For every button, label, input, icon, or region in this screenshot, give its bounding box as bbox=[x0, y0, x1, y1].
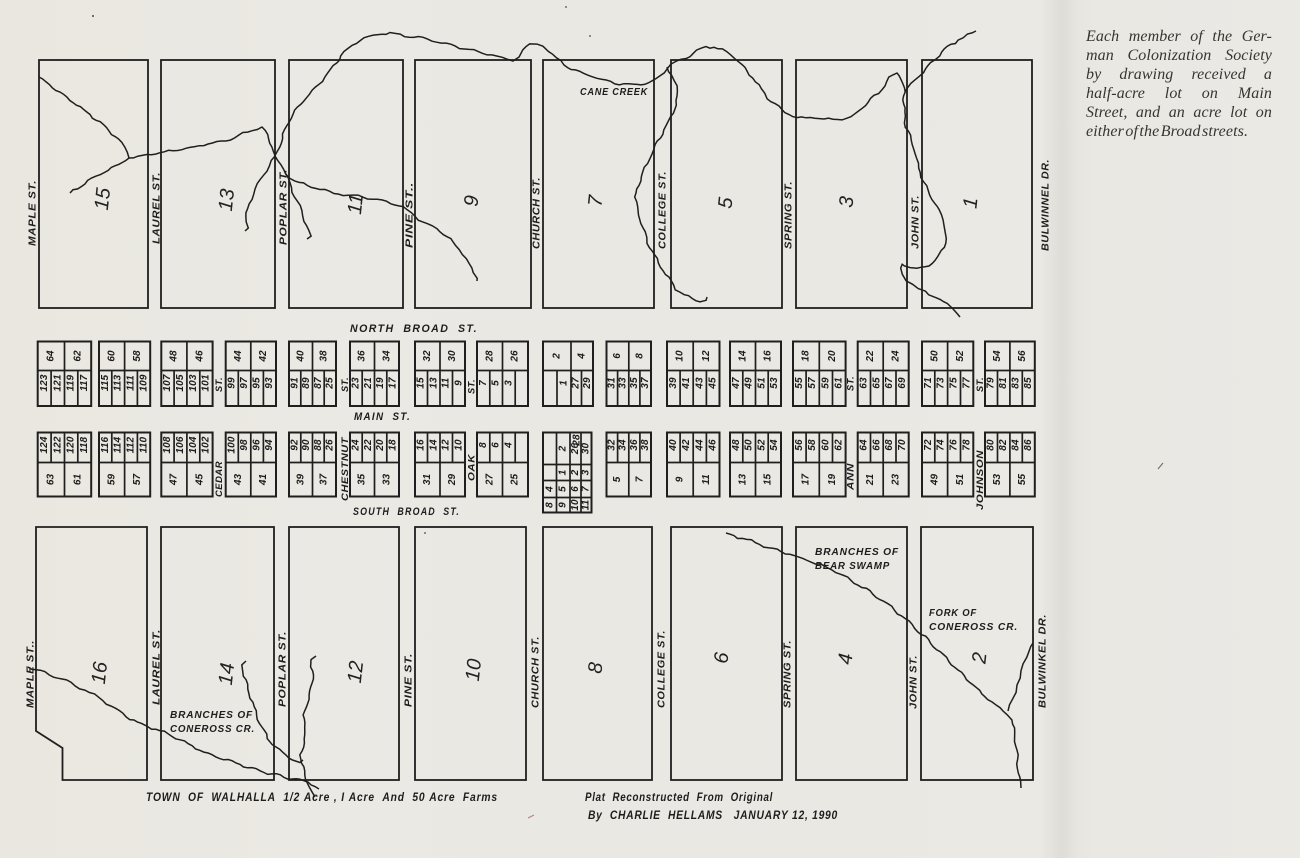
svg-text:108: 108 bbox=[162, 436, 173, 454]
svg-text:11: 11 bbox=[701, 474, 712, 485]
svg-text:65: 65 bbox=[871, 377, 882, 389]
svg-text:47: 47 bbox=[169, 474, 180, 487]
svg-text:12: 12 bbox=[701, 350, 712, 362]
svg-text:48: 48 bbox=[731, 439, 742, 452]
svg-text:84: 84 bbox=[1011, 439, 1022, 451]
svg-text:26: 26 bbox=[325, 439, 336, 452]
svg-text:5: 5 bbox=[558, 486, 569, 492]
svg-text:92: 92 bbox=[289, 439, 300, 451]
svg-text:116: 116 bbox=[100, 436, 111, 453]
svg-text:123: 123 bbox=[39, 374, 50, 392]
svg-text:BULWINKEL DR.: BULWINKEL DR. bbox=[1038, 614, 1049, 708]
svg-text:112: 112 bbox=[126, 436, 137, 453]
svg-text:BULWINNEL DR.: BULWINNEL DR. bbox=[1041, 159, 1052, 251]
svg-text:35: 35 bbox=[357, 474, 368, 486]
svg-text:20: 20 bbox=[375, 439, 386, 452]
svg-text:14: 14 bbox=[737, 350, 748, 362]
svg-text:32: 32 bbox=[607, 439, 618, 451]
svg-text:ST.: ST. bbox=[214, 377, 225, 392]
svg-text:35: 35 bbox=[629, 377, 640, 389]
svg-text:59: 59 bbox=[820, 377, 831, 389]
svg-text:83: 83 bbox=[1011, 377, 1022, 389]
svg-text:100: 100 bbox=[227, 436, 238, 454]
svg-text:17: 17 bbox=[387, 377, 398, 389]
svg-text:39: 39 bbox=[295, 474, 306, 486]
svg-text:3: 3 bbox=[503, 380, 514, 386]
svg-text:16: 16 bbox=[416, 439, 427, 451]
svg-text:99: 99 bbox=[227, 377, 238, 389]
svg-text:6: 6 bbox=[710, 650, 733, 664]
svg-text:SPRING ST.: SPRING ST. bbox=[783, 640, 794, 708]
svg-text:60: 60 bbox=[820, 439, 831, 451]
svg-text:29: 29 bbox=[447, 474, 458, 487]
svg-text:71: 71 bbox=[923, 377, 934, 389]
svg-text:53: 53 bbox=[992, 474, 1003, 486]
svg-text:59: 59 bbox=[106, 474, 117, 486]
svg-text:CHURCH ST.: CHURCH ST. bbox=[531, 636, 542, 708]
svg-text:50: 50 bbox=[744, 439, 755, 451]
svg-text:7: 7 bbox=[478, 380, 489, 386]
svg-text:27: 27 bbox=[484, 474, 495, 487]
svg-text:Plat Reconstructed From Ori: Plat Reconstructed From Original bbox=[585, 792, 773, 804]
svg-text:45: 45 bbox=[194, 474, 205, 487]
svg-text:41: 41 bbox=[258, 474, 269, 487]
svg-text:POPLAR ST.: POPLAR ST. bbox=[279, 169, 290, 245]
svg-text:COLLEGE ST.: COLLEGE ST. bbox=[657, 630, 668, 708]
svg-text:ANN: ANN bbox=[846, 462, 857, 491]
svg-text:7: 7 bbox=[581, 486, 592, 492]
svg-text:4: 4 bbox=[834, 652, 857, 665]
svg-text:81: 81 bbox=[998, 377, 1009, 389]
svg-text:115: 115 bbox=[100, 374, 111, 391]
svg-text:40: 40 bbox=[668, 439, 679, 452]
svg-text:43: 43 bbox=[694, 377, 705, 390]
svg-text:LAUREL ST.: LAUREL ST. bbox=[152, 629, 163, 705]
svg-text:1: 1 bbox=[559, 380, 570, 386]
svg-text:103: 103 bbox=[188, 374, 199, 392]
svg-text:TOWN OF WALHALLA 1/2 Acre ,: TOWN OF WALHALLA 1/2 Acre , I Acre And 5… bbox=[146, 790, 498, 804]
svg-text:32: 32 bbox=[422, 350, 433, 362]
svg-text:21: 21 bbox=[363, 377, 374, 390]
svg-text:28: 28 bbox=[484, 350, 495, 363]
svg-text:97: 97 bbox=[239, 377, 250, 389]
svg-text:PINE ST.: PINE ST. bbox=[404, 653, 415, 707]
svg-text:63: 63 bbox=[46, 474, 57, 486]
svg-text:93: 93 bbox=[264, 377, 275, 389]
svg-text:34: 34 bbox=[618, 439, 629, 451]
svg-text:124: 124 bbox=[39, 436, 50, 454]
svg-text:31: 31 bbox=[422, 474, 433, 486]
svg-text:33: 33 bbox=[618, 377, 629, 389]
svg-text:51: 51 bbox=[955, 474, 966, 486]
svg-text:19: 19 bbox=[375, 377, 386, 389]
svg-text:16: 16 bbox=[88, 660, 112, 685]
svg-text:CHURCH ST.: CHURCH ST. bbox=[532, 177, 543, 249]
svg-text:46: 46 bbox=[707, 439, 718, 452]
svg-text:54: 54 bbox=[992, 350, 1003, 362]
svg-text:52: 52 bbox=[756, 439, 767, 451]
svg-text:75: 75 bbox=[949, 377, 960, 389]
svg-text:16: 16 bbox=[763, 350, 774, 362]
svg-text:42: 42 bbox=[681, 439, 692, 452]
svg-text:102: 102 bbox=[201, 436, 212, 454]
svg-text:53: 53 bbox=[769, 377, 780, 389]
svg-text:CONEROSS CR.: CONEROSS CR. bbox=[929, 622, 1018, 633]
svg-text:22: 22 bbox=[865, 350, 876, 363]
svg-text:12: 12 bbox=[344, 660, 368, 684]
svg-text:87: 87 bbox=[313, 377, 324, 389]
svg-text:NORTH BROAD ST.: NORTH BROAD ST. bbox=[350, 323, 478, 335]
svg-text:55: 55 bbox=[1017, 474, 1028, 486]
svg-text:7: 7 bbox=[634, 476, 645, 482]
svg-text:104: 104 bbox=[188, 436, 199, 454]
svg-text:58: 58 bbox=[807, 439, 818, 451]
svg-text:77: 77 bbox=[961, 377, 972, 389]
svg-text:SPRING ST.: SPRING ST. bbox=[784, 181, 795, 249]
svg-text:8: 8 bbox=[544, 502, 555, 508]
svg-text:91: 91 bbox=[289, 377, 300, 389]
svg-text:10: 10 bbox=[462, 658, 486, 682]
svg-text:90: 90 bbox=[301, 439, 312, 451]
svg-text:37: 37 bbox=[319, 474, 330, 486]
svg-text:6: 6 bbox=[612, 353, 623, 359]
svg-text:3: 3 bbox=[581, 469, 592, 475]
svg-text:57: 57 bbox=[807, 377, 818, 389]
svg-text:JOHN ST.: JOHN ST. bbox=[909, 655, 920, 709]
svg-text:22: 22 bbox=[363, 439, 374, 452]
svg-text:37: 37 bbox=[640, 377, 651, 389]
svg-text:85: 85 bbox=[1023, 377, 1034, 389]
svg-text:40: 40 bbox=[295, 350, 306, 363]
svg-text:COLLEGE ST.: COLLEGE ST. bbox=[658, 171, 669, 249]
svg-text:111: 111 bbox=[126, 375, 137, 391]
svg-text:95: 95 bbox=[252, 377, 263, 389]
svg-text:121: 121 bbox=[52, 374, 63, 392]
svg-text:FORK OF: FORK OF bbox=[929, 608, 977, 619]
svg-text:2: 2 bbox=[570, 469, 581, 476]
svg-text:23: 23 bbox=[351, 377, 362, 390]
svg-text:64: 64 bbox=[46, 350, 57, 362]
svg-text:BEAR SWAMP: BEAR SWAMP bbox=[815, 561, 890, 572]
svg-text:CHESTNUT: CHESTNUT bbox=[340, 436, 351, 501]
svg-text:18: 18 bbox=[387, 439, 398, 451]
svg-text:49: 49 bbox=[744, 377, 755, 390]
svg-text:LAUREL ST.: LAUREL ST. bbox=[152, 172, 163, 244]
svg-text:114: 114 bbox=[113, 436, 124, 453]
svg-text:30: 30 bbox=[447, 350, 458, 362]
svg-text:24: 24 bbox=[891, 350, 902, 363]
svg-text:9: 9 bbox=[558, 502, 569, 508]
svg-text:64: 64 bbox=[859, 439, 870, 451]
svg-text:5: 5 bbox=[612, 476, 623, 482]
svg-text:44: 44 bbox=[694, 439, 705, 452]
svg-text:29: 29 bbox=[582, 377, 593, 390]
svg-text:86: 86 bbox=[1023, 439, 1034, 451]
svg-text:107: 107 bbox=[162, 374, 173, 392]
svg-text:45: 45 bbox=[707, 377, 718, 390]
svg-text:50: 50 bbox=[929, 350, 940, 362]
svg-text:ST.: ST. bbox=[975, 377, 986, 392]
svg-text:44: 44 bbox=[233, 350, 244, 363]
svg-text:ST.: ST. bbox=[340, 377, 351, 392]
svg-text:43: 43 bbox=[233, 474, 244, 487]
svg-text:62: 62 bbox=[834, 439, 845, 451]
svg-text:61: 61 bbox=[834, 377, 845, 389]
svg-text:ST.: ST. bbox=[846, 376, 857, 391]
svg-text:57: 57 bbox=[132, 474, 143, 486]
svg-text:ST.: ST. bbox=[467, 379, 478, 394]
svg-text:17: 17 bbox=[801, 474, 812, 486]
svg-text:49: 49 bbox=[929, 474, 940, 487]
svg-text:15: 15 bbox=[763, 474, 774, 486]
svg-text:10: 10 bbox=[675, 350, 686, 362]
svg-text:12: 12 bbox=[441, 439, 452, 451]
svg-text:110: 110 bbox=[138, 436, 149, 453]
svg-text:69: 69 bbox=[897, 377, 908, 389]
svg-text:62: 62 bbox=[72, 350, 83, 362]
svg-text:14: 14 bbox=[428, 439, 439, 451]
svg-text:4: 4 bbox=[577, 353, 588, 360]
svg-text:94: 94 bbox=[264, 439, 275, 451]
svg-text:39: 39 bbox=[668, 377, 679, 389]
svg-text:CONEROSS CR.: CONEROSS CR. bbox=[170, 724, 255, 735]
svg-text:10: 10 bbox=[453, 439, 464, 451]
svg-text:38: 38 bbox=[640, 439, 651, 451]
svg-text:68: 68 bbox=[884, 439, 895, 451]
svg-text:54: 54 bbox=[769, 439, 780, 451]
svg-text:8: 8 bbox=[478, 442, 489, 448]
svg-text:24: 24 bbox=[351, 439, 362, 452]
svg-text:2: 2 bbox=[968, 651, 991, 665]
svg-text:79: 79 bbox=[986, 377, 997, 389]
svg-text:25: 25 bbox=[325, 377, 336, 390]
svg-text:6: 6 bbox=[570, 486, 581, 492]
svg-text:41: 41 bbox=[681, 377, 692, 390]
svg-text:6: 6 bbox=[491, 442, 502, 448]
svg-text:8: 8 bbox=[584, 661, 607, 674]
svg-text:48: 48 bbox=[169, 350, 180, 363]
svg-text:113: 113 bbox=[113, 374, 124, 391]
svg-text:122: 122 bbox=[52, 436, 63, 454]
svg-text:80: 80 bbox=[986, 439, 997, 451]
svg-text:19: 19 bbox=[827, 474, 838, 486]
svg-text:118: 118 bbox=[79, 436, 90, 453]
svg-text:38: 38 bbox=[319, 350, 330, 362]
svg-text:13: 13 bbox=[215, 188, 239, 212]
svg-text:66: 66 bbox=[871, 439, 882, 451]
svg-text:MAPLE ST..: MAPLE ST.. bbox=[26, 640, 37, 708]
svg-text:BRANCHES OF: BRANCHES OF bbox=[170, 710, 253, 721]
svg-text:CEDAR: CEDAR bbox=[214, 461, 225, 497]
svg-text:8: 8 bbox=[634, 353, 645, 359]
svg-text:56: 56 bbox=[1017, 350, 1028, 362]
svg-text:OAK: OAK bbox=[467, 453, 478, 481]
svg-text:89: 89 bbox=[301, 377, 312, 389]
svg-text:36: 36 bbox=[629, 439, 640, 451]
svg-text:36: 36 bbox=[357, 350, 368, 362]
svg-text:56: 56 bbox=[794, 439, 805, 451]
svg-text:78: 78 bbox=[961, 439, 972, 451]
svg-text:JOHNSON: JOHNSON bbox=[975, 449, 986, 510]
svg-text:60: 60 bbox=[106, 350, 117, 362]
svg-text:101: 101 bbox=[201, 374, 212, 392]
svg-text:5: 5 bbox=[491, 380, 502, 386]
svg-text:47: 47 bbox=[731, 377, 742, 390]
svg-text:11: 11 bbox=[441, 377, 452, 388]
svg-text:MAIN ST.: MAIN ST. bbox=[354, 411, 411, 423]
svg-text:63: 63 bbox=[859, 377, 870, 389]
svg-text:88: 88 bbox=[313, 439, 324, 451]
svg-text:BRANCHES OF: BRANCHES OF bbox=[815, 547, 899, 558]
svg-text:76: 76 bbox=[949, 439, 960, 451]
svg-text:67: 67 bbox=[884, 377, 895, 389]
svg-text:1: 1 bbox=[959, 196, 982, 209]
svg-text:2: 2 bbox=[558, 445, 569, 452]
svg-text:SOUTH BROAD ST.: SOUTH BROAD ST. bbox=[353, 506, 460, 518]
svg-text:42: 42 bbox=[258, 350, 269, 363]
svg-text:120: 120 bbox=[66, 436, 77, 454]
svg-text:72: 72 bbox=[923, 439, 934, 451]
svg-text:31: 31 bbox=[607, 377, 618, 389]
svg-text:46: 46 bbox=[194, 350, 205, 363]
svg-text:JOHN ST.: JOHN ST. bbox=[911, 195, 922, 249]
svg-text:23: 23 bbox=[891, 474, 902, 487]
svg-text:9: 9 bbox=[460, 194, 483, 207]
svg-text:13: 13 bbox=[737, 474, 748, 486]
svg-text:18: 18 bbox=[801, 350, 812, 362]
svg-text:CANE CREEK: CANE CREEK bbox=[580, 87, 648, 98]
svg-text:2: 2 bbox=[552, 353, 563, 360]
svg-text:MAPLE ST.: MAPLE ST. bbox=[28, 180, 39, 246]
svg-text:9: 9 bbox=[675, 476, 686, 482]
svg-text:106: 106 bbox=[175, 436, 186, 454]
svg-text:74: 74 bbox=[936, 439, 947, 451]
svg-text:55: 55 bbox=[794, 377, 805, 389]
svg-text:119: 119 bbox=[66, 374, 77, 391]
svg-text:1: 1 bbox=[558, 469, 569, 475]
svg-text:4: 4 bbox=[503, 442, 514, 449]
svg-text:20: 20 bbox=[827, 350, 838, 363]
svg-text:33: 33 bbox=[381, 474, 392, 486]
svg-text:58: 58 bbox=[132, 350, 143, 362]
svg-text:14: 14 bbox=[215, 662, 239, 686]
svg-text:96: 96 bbox=[252, 439, 263, 451]
svg-text:25: 25 bbox=[510, 474, 521, 487]
svg-text:26: 26 bbox=[510, 350, 521, 363]
svg-text:11: 11 bbox=[581, 499, 592, 510]
svg-text:98: 98 bbox=[239, 439, 250, 451]
svg-text:3: 3 bbox=[835, 195, 858, 208]
svg-text:117: 117 bbox=[79, 374, 90, 391]
svg-text:109: 109 bbox=[138, 374, 149, 392]
svg-text:27: 27 bbox=[571, 377, 582, 390]
svg-text:52: 52 bbox=[955, 350, 966, 362]
svg-text:10: 10 bbox=[570, 499, 581, 511]
svg-text:7: 7 bbox=[584, 193, 607, 207]
svg-text:73: 73 bbox=[936, 377, 947, 389]
svg-text:POPLAR ST.: POPLAR ST. bbox=[278, 631, 289, 707]
svg-text:61: 61 bbox=[72, 474, 83, 486]
svg-text:105: 105 bbox=[175, 374, 186, 392]
svg-text:5: 5 bbox=[714, 195, 737, 209]
svg-text:15: 15 bbox=[416, 377, 427, 389]
svg-text:13: 13 bbox=[428, 377, 439, 389]
svg-text:9: 9 bbox=[453, 380, 464, 386]
svg-text:4: 4 bbox=[544, 486, 555, 493]
svg-text:70: 70 bbox=[897, 439, 908, 451]
svg-text:21: 21 bbox=[865, 474, 876, 487]
svg-text:34: 34 bbox=[381, 350, 392, 362]
svg-text:82: 82 bbox=[998, 439, 1009, 451]
svg-text:51: 51 bbox=[756, 377, 767, 389]
svg-text:15: 15 bbox=[91, 186, 115, 211]
svg-text:By CHARLIE HELLAMS JANUARY: By CHARLIE HELLAMS JANUARY 12, 1990 bbox=[588, 810, 838, 822]
svg-text:28: 28 bbox=[572, 434, 583, 447]
